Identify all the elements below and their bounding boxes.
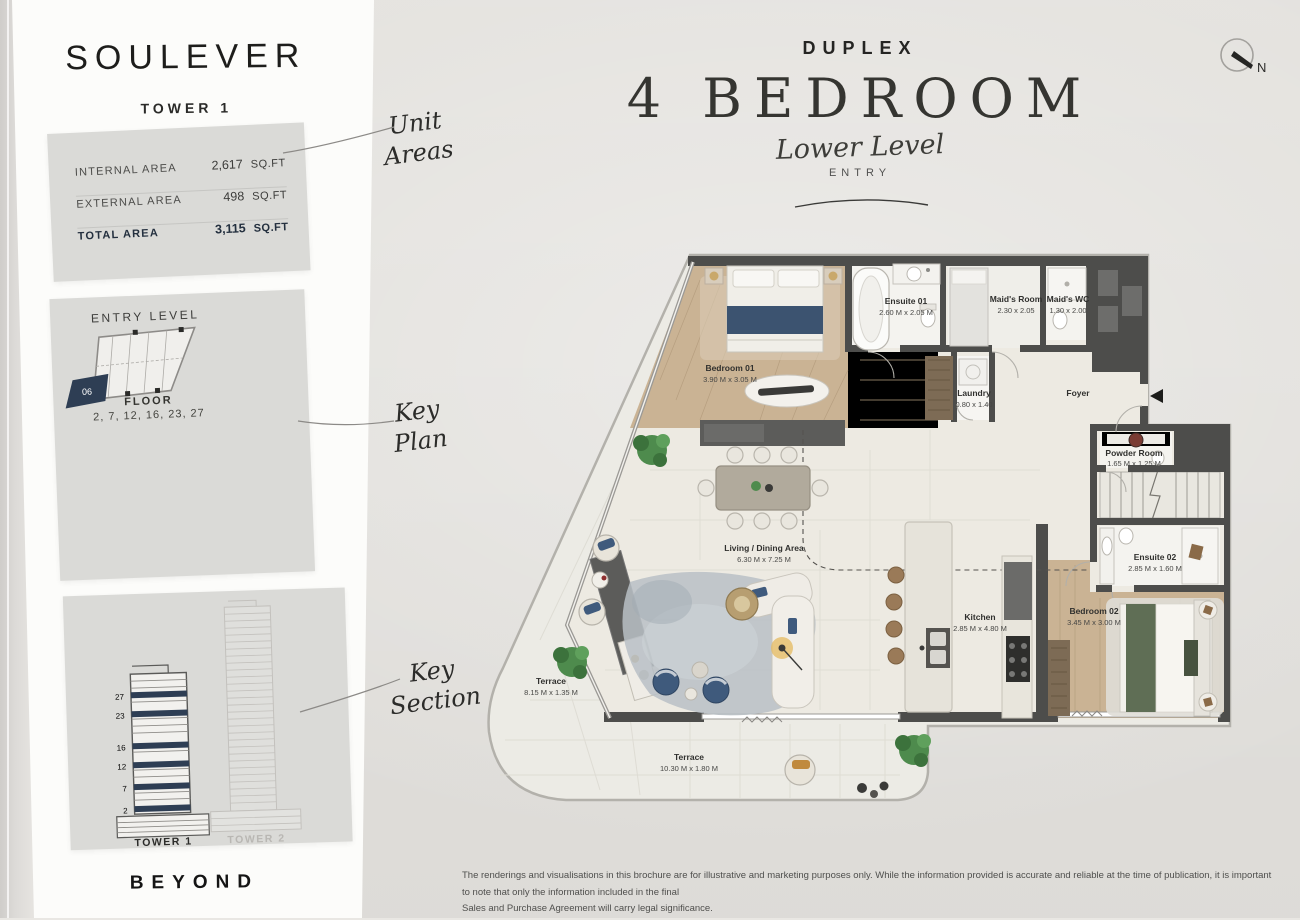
room-dims: 6.30 M x 7.25 M <box>737 555 791 564</box>
side-table-icon <box>1199 601 1217 619</box>
armchair-icon <box>703 677 729 703</box>
tower-label: TOWER 1 <box>36 98 336 117</box>
title-underline <box>795 200 928 207</box>
basin-icon <box>907 267 921 281</box>
room-label: Kitchen <box>964 612 995 622</box>
key-section-note: Key Section <box>385 651 483 722</box>
interior-tiles <box>605 430 1040 710</box>
compass: N <box>1221 39 1266 75</box>
area-row-value: 2,617 <box>211 157 243 172</box>
tower1-elevation: 27 23 16 12 7 2 <box>112 664 209 838</box>
key-plan-note: Key Plan <box>389 393 450 459</box>
page-header: DUPLEX 4 BEDROOM Lower Level ENTRY <box>620 0 1100 179</box>
room-dims: 2.30 x 2.05 <box>997 306 1034 315</box>
terrace-console-icon <box>590 550 662 701</box>
tower1-caption: TOWER 1 <box>134 835 193 849</box>
brand-logo: SOULEVER <box>36 36 336 78</box>
tower2-elevation <box>204 599 301 832</box>
key-plan-note-line2: Plan <box>392 423 449 459</box>
plant-icon <box>895 734 931 767</box>
unit-areas-box: INTERNAL AREA 2,617 SQ.FT EXTERNAL AREA … <box>47 122 310 282</box>
north-label: N <box>1257 60 1266 75</box>
terrace-furniture <box>553 434 931 798</box>
built-ins <box>590 356 1070 716</box>
floor-lamp-icon <box>771 637 793 659</box>
stairs <box>1100 470 1220 520</box>
terrace-tiles <box>500 430 920 798</box>
ensuite02-fixtures <box>1100 528 1218 584</box>
floor-plan: Bedroom 01 3.90 M x 3.05 M Ensuite 01 2.… <box>489 255 1230 800</box>
armchair-icon <box>653 669 679 695</box>
floor-mark: 7 <box>122 784 127 793</box>
single-bed-icon <box>950 268 988 346</box>
room-dims: 3.90 M x 3.05 M <box>703 375 757 384</box>
vanity-icon <box>1100 528 1114 584</box>
bed-icon <box>705 266 842 352</box>
room-dims: 2.85 M x 1.60 M <box>1128 564 1182 573</box>
basin-icon <box>1129 433 1143 447</box>
room-label: Laundry <box>957 388 991 398</box>
bedroom02-furniture <box>1106 598 1224 716</box>
shower-icon <box>1048 268 1086 300</box>
room-dims: 2.60 M x 2.05 M <box>879 308 933 317</box>
bathtub-icon <box>853 268 889 350</box>
door-swings <box>868 352 1142 612</box>
dining-chairs <box>698 447 828 529</box>
living-furniture <box>622 570 815 715</box>
floor-mark: 23 <box>116 711 126 720</box>
island-icon <box>905 522 952 712</box>
room-label: Maid's Room <box>990 294 1043 304</box>
north-needle-icon <box>1231 51 1253 69</box>
rug-icon <box>1106 598 1224 716</box>
wood-floors <box>630 262 1228 718</box>
sink-icon <box>926 628 950 668</box>
ensuite01-fixtures <box>853 264 940 350</box>
walls <box>604 256 1230 722</box>
powder-room-fixtures <box>1102 432 1170 465</box>
area-row-label: EXTERNAL AREA <box>76 192 224 211</box>
wet-area-floors <box>851 266 1220 586</box>
unit-number: 06 <box>82 387 92 397</box>
disclaimer-text: The renderings and visualisations in thi… <box>462 868 1274 918</box>
glass-walls <box>567 262 1220 719</box>
outdoor-chair-icon <box>593 535 619 561</box>
disclaimer-line1: The renderings and visualisations in thi… <box>462 868 1274 901</box>
key-section-diagram: 27 23 16 12 7 2 TOWER 1 TOWER 2 <box>63 587 353 850</box>
room-dims: 8.15 M x 1.35 M <box>524 688 578 697</box>
room-dims: 3.45 M x 3.00 M <box>1067 618 1121 627</box>
sofa-icon <box>739 570 815 708</box>
room-dims: 1.65 M x 1.25 M <box>1107 459 1161 468</box>
floor-mark: 2 <box>123 806 128 815</box>
rug-icon <box>700 276 840 360</box>
area-rug-icon <box>622 572 815 716</box>
key-section-box: 27 23 16 12 7 2 TOWER 1 TOWER 2 <box>63 587 353 850</box>
dining-table-icon <box>716 466 810 510</box>
floor-mark: 12 <box>117 762 127 771</box>
plant-icon <box>633 434 670 467</box>
outdoor-chair-icon <box>579 599 605 625</box>
level-script-label: Lower Level <box>620 124 1101 172</box>
bench-icon <box>745 375 829 407</box>
area-row-unit: SQ.FT <box>253 221 288 235</box>
disclaimer-line2: Sales and Purchase Agreement will carry … <box>462 901 1274 918</box>
area-row-label: INTERNAL AREA <box>75 161 212 179</box>
laundry-fixtures <box>959 359 987 385</box>
shower-icon <box>1182 528 1218 584</box>
vanity-icon <box>893 264 940 284</box>
area-row-unit: SQ.FT <box>252 189 287 203</box>
floor-mark: 16 <box>117 743 127 752</box>
entry-arrow-icon <box>1150 389 1163 403</box>
terrace-slab <box>489 255 1230 800</box>
room-label: Terrace <box>536 676 566 686</box>
toilet-icon <box>921 309 935 327</box>
area-row-value: 3,115 <box>215 221 246 236</box>
room-label: Ensuite 01 <box>885 296 928 306</box>
tall-cabinet-icon <box>1004 562 1032 620</box>
kitchen-fixtures <box>886 522 1032 718</box>
unit-areas-note: Unit Areas <box>379 104 455 172</box>
room-label: Living / Dining Area <box>724 543 804 553</box>
room-label: Terrace <box>674 752 704 762</box>
robe-hook-icon <box>1188 544 1203 560</box>
plant-icon <box>553 646 589 679</box>
bedroom01-furniture <box>700 266 842 407</box>
outdoor-table-icon <box>592 572 608 588</box>
room-labels: Bedroom 01 3.90 M x 3.05 M Ensuite 01 2.… <box>524 294 1182 773</box>
room-dims: 2.85 M x 4.80 M <box>953 624 1007 633</box>
interior-floor <box>567 262 1228 720</box>
stove-icon <box>1006 636 1030 682</box>
dining-set <box>698 447 828 529</box>
toilet-icon <box>1152 451 1164 465</box>
floor-mark: 27 <box>115 692 125 701</box>
sidebar-panel: SOULEVER TOWER 1 INTERNAL AREA 2,617 SQ.… <box>0 0 380 918</box>
compass-circle-icon <box>1221 39 1253 71</box>
key-plan-box: ENTRY LEVEL 06 FLOOR 2, 7, 12, 16, 23, 2… <box>49 289 315 581</box>
room-label: Foyer <box>1066 388 1090 398</box>
brand-beyond: BEYOND <box>34 870 354 895</box>
coffee-table-icon <box>726 588 758 620</box>
washer-icon <box>959 359 987 385</box>
duplex-divider-line <box>803 430 1088 570</box>
lounge-chair-icon <box>785 755 815 785</box>
room-label: Bedroom 02 <box>1069 606 1118 616</box>
room-dims: 10.30 M x 1.80 M <box>660 764 718 773</box>
room-dims: 0.80 x 1.40 <box>955 400 992 409</box>
toilet-icon <box>1053 311 1067 329</box>
unit-type-label: DUPLEX <box>620 38 1100 59</box>
counter-icon <box>1002 556 1032 718</box>
side-table-icon <box>692 662 708 678</box>
area-row-unit: SQ.FT <box>251 157 286 171</box>
page-title: 4 BEDROOM <box>620 67 1100 130</box>
wall-closets <box>1098 270 1142 332</box>
room-dims: 1.30 x 2.00 <box>1049 306 1086 315</box>
area-row-value: 498 <box>223 189 244 204</box>
tower2-caption: TOWER 2 <box>227 832 286 846</box>
threshold-marks <box>742 711 1102 722</box>
side-table-icon <box>685 688 697 700</box>
room-label: Ensuite 02 <box>1134 552 1177 562</box>
side-table-icon <box>1199 693 1217 711</box>
room-label: Bedroom 01 <box>705 363 754 373</box>
room-label: Powder Room <box>1105 448 1163 458</box>
maids-room-furniture <box>950 268 1086 346</box>
room-label: Maid's WC <box>1047 294 1090 304</box>
bed-icon <box>1120 600 1212 716</box>
bar-stools <box>886 567 904 664</box>
area-row-label: TOTAL AREA <box>78 224 216 242</box>
toilet-icon <box>1119 528 1133 544</box>
